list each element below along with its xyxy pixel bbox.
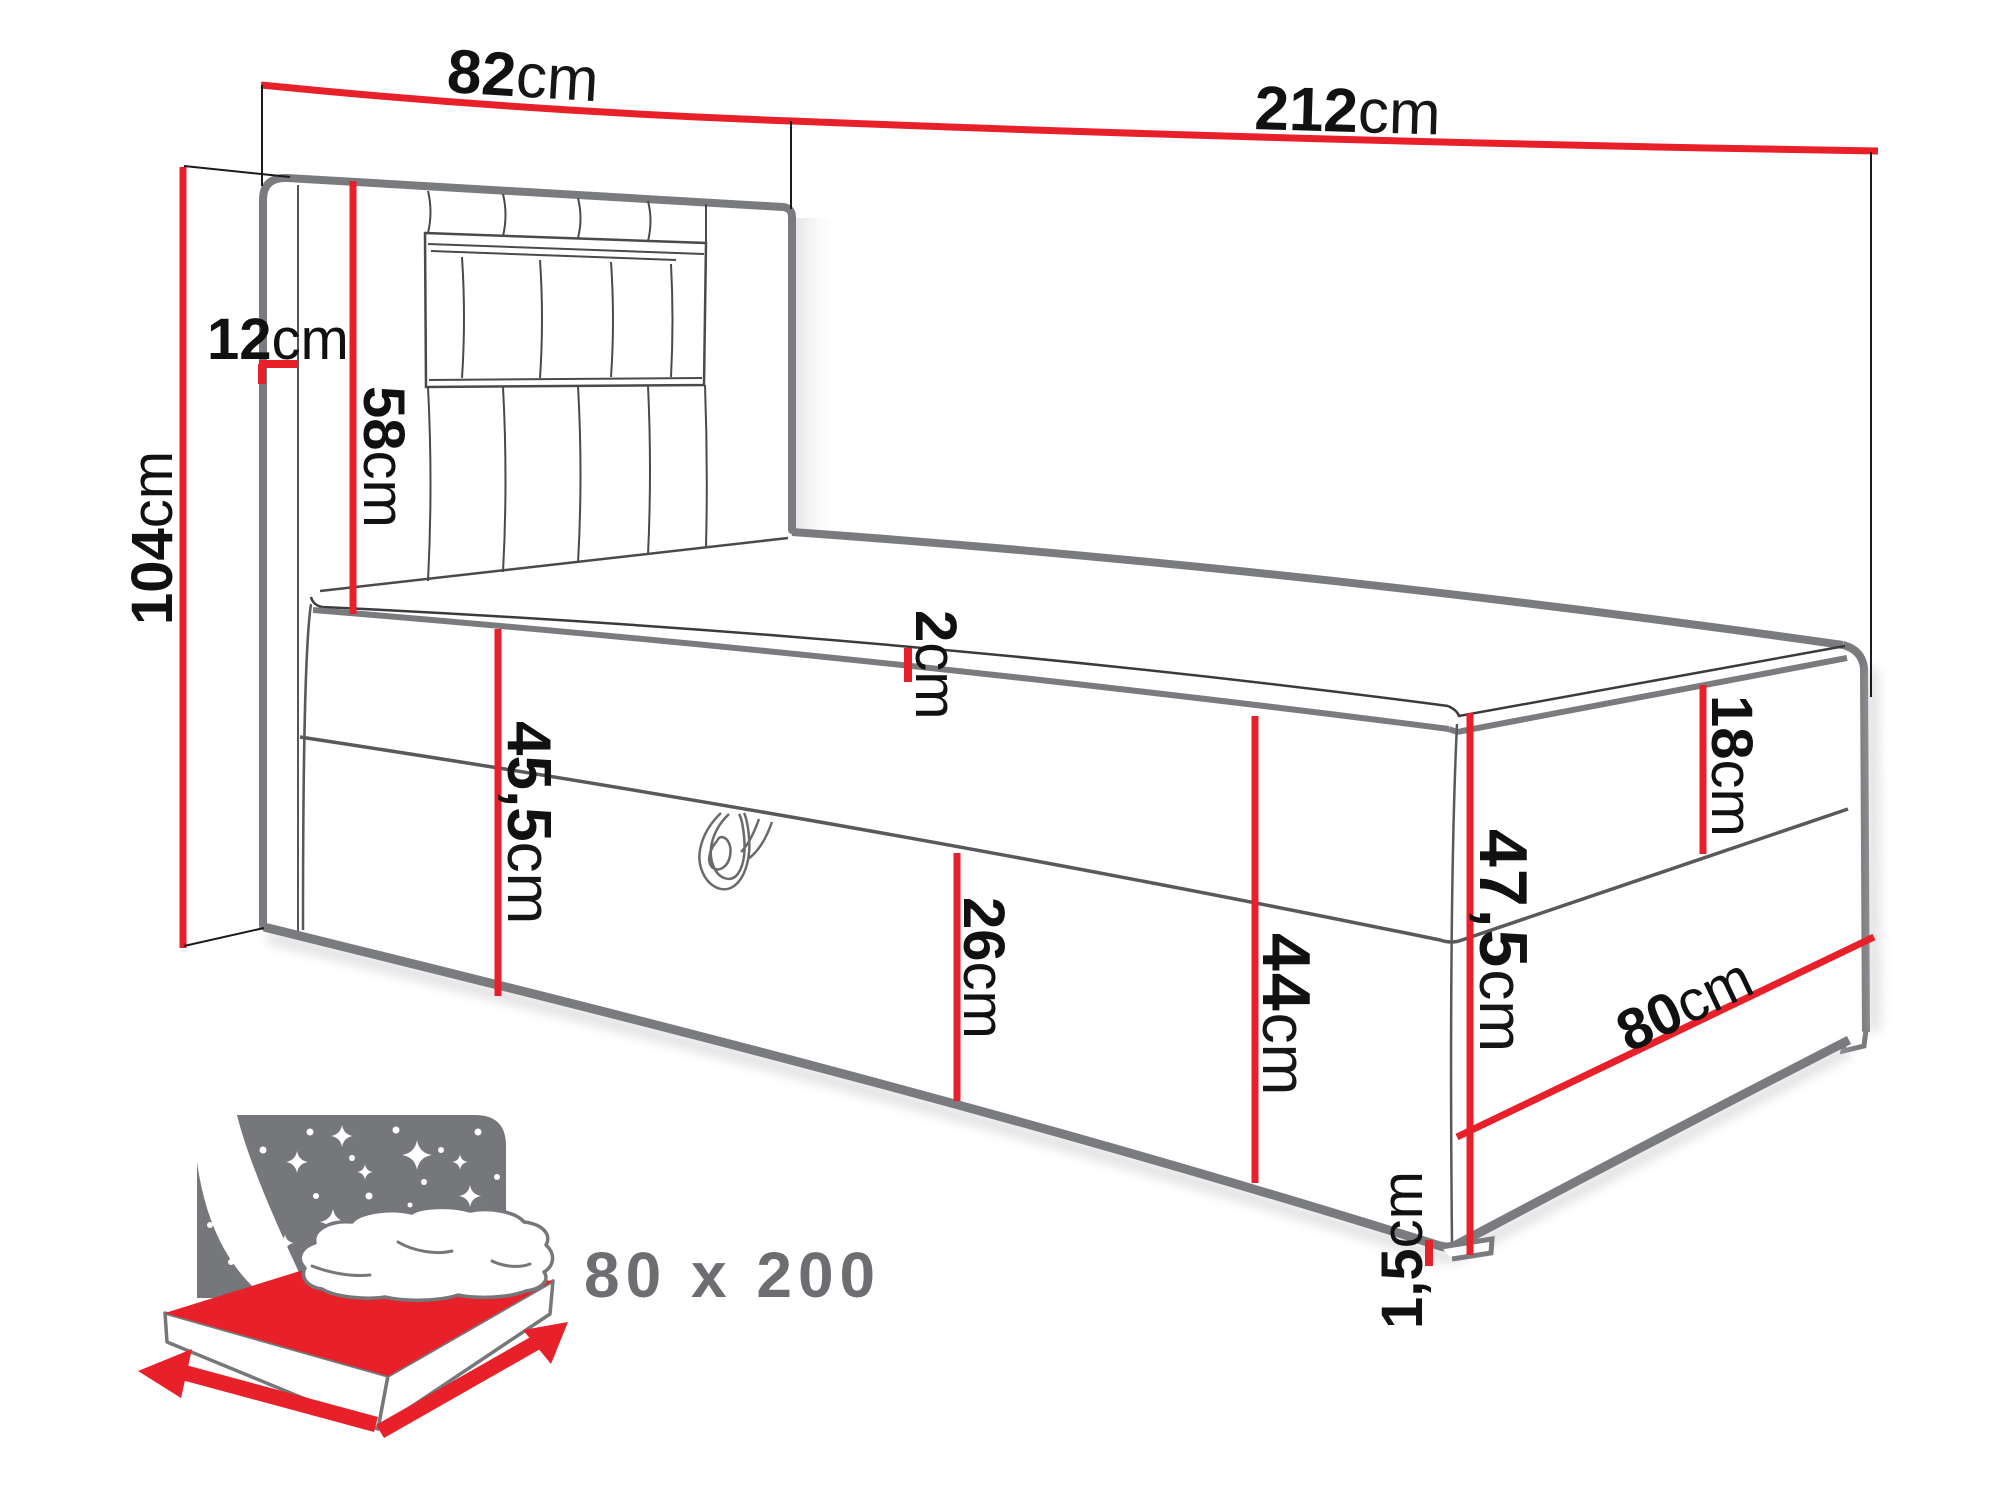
svg-text:47,5cm: 47,5cm <box>1465 829 1541 1052</box>
svg-text:26cm: 26cm <box>951 897 1016 1039</box>
svg-text:212cm: 212cm <box>1254 74 1442 148</box>
svg-text:45,5cm: 45,5cm <box>494 721 563 924</box>
svg-text:58cm: 58cm <box>351 386 416 528</box>
svg-text:80 x 200: 80 x 200 <box>584 1239 881 1311</box>
svg-text:1,5cm: 1,5cm <box>1370 1171 1435 1329</box>
svg-text:12cm: 12cm <box>207 307 349 372</box>
svg-text:2cm: 2cm <box>903 610 968 720</box>
svg-text:18cm: 18cm <box>1699 695 1764 837</box>
svg-text:104cm: 104cm <box>120 451 185 625</box>
svg-text:44cm: 44cm <box>1248 933 1324 1095</box>
svg-text:82cm: 82cm <box>445 37 601 115</box>
